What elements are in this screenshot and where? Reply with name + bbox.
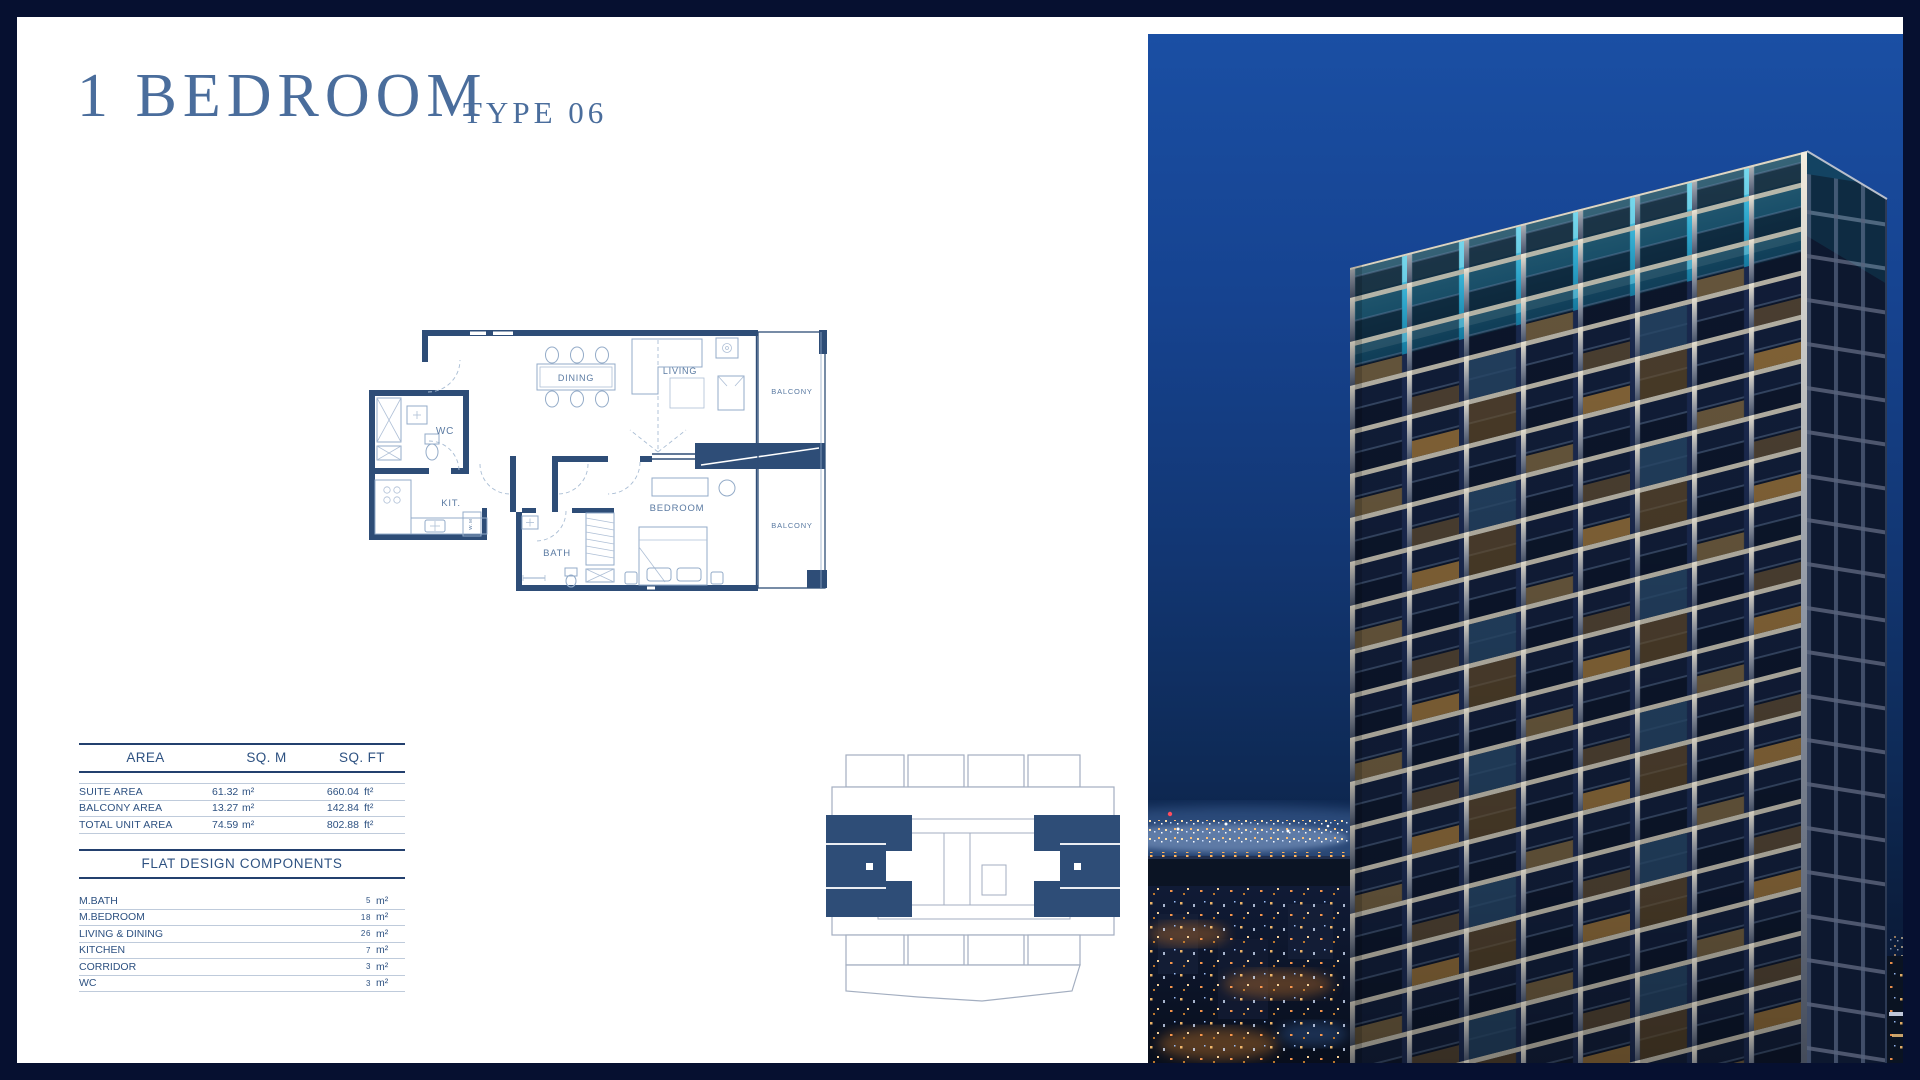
row-value: 26 [345, 929, 371, 938]
key-plan [822, 739, 1127, 1017]
row-label: KITCHEN [79, 944, 345, 956]
row-label: CORRIDOR [79, 961, 345, 973]
table-row: CORRIDOR 3 m² [79, 959, 405, 976]
components-table: FLAT DESIGN COMPONENTS M.BATH 5 m² M.BED… [79, 849, 405, 992]
row-unit: m² [371, 977, 397, 989]
row-value: 5 [345, 896, 371, 905]
bedroom-label: BEDROOM [650, 503, 705, 514]
page-subtitle: TYPE 06 [463, 95, 607, 131]
sqm-unit: m² [237, 802, 267, 814]
sqft-unit: ft² [359, 802, 389, 814]
row-label: TOTAL UNIT AREA [79, 819, 212, 831]
kitchen-label: KIT. [441, 498, 461, 509]
row-label: M.BEDROOM [79, 911, 345, 923]
wc-fixtures [377, 398, 439, 460]
balcony-bottom-label: BALCONY [771, 521, 812, 530]
balcony-top-label: BALCONY [771, 387, 812, 396]
sqm-value: 74.59 [212, 819, 237, 831]
row-value: 3 [345, 979, 371, 988]
table-row: BALCONY AREA 13.27 m² 142.84 ft² [79, 801, 405, 818]
col-header-sqft: SQ. FT [319, 750, 405, 765]
row-label: WC [79, 977, 345, 989]
row-unit: m² [371, 911, 397, 923]
bath-label: BATH [543, 548, 571, 559]
sqft-value: 142.84 [267, 802, 359, 814]
table-row: WC 3 m² [79, 976, 405, 993]
living-label: LIVING [663, 366, 697, 376]
building-photo [1148, 34, 1903, 1063]
row-label: SUITE AREA [79, 786, 212, 798]
bedroom-furniture [625, 478, 735, 585]
floor-plan: W.M [367, 322, 832, 607]
washing-machine-label: W.M [468, 518, 473, 529]
sqft-unit: ft² [359, 819, 389, 831]
beacon-light [1168, 812, 1172, 816]
row-unit: m² [371, 895, 397, 907]
table-row: M.BEDROOM 18 m² [79, 910, 405, 927]
row-value: 3 [345, 962, 371, 971]
row-unit: m² [371, 961, 397, 973]
sqm-value: 61.32 [212, 786, 237, 798]
table-row: SUITE AREA 61.32 m² 660.04 ft² [79, 784, 405, 801]
table-row: LIVING & DINING 26 m² [79, 926, 405, 943]
area-table: AREA SQ. M SQ. FT SUITE AREA 61.32 m² 66… [79, 743, 405, 834]
brochure-page: 1 BEDROOM TYPE 06 [17, 17, 1903, 1063]
dining-label: DINING [558, 373, 594, 383]
page-frame: 1 BEDROOM TYPE 06 [0, 0, 1920, 1080]
page-title: 1 BEDROOM [77, 61, 488, 132]
city-right-strip [1887, 934, 1903, 1063]
tower-side-face [1807, 144, 1887, 1063]
col-header-area: AREA [79, 750, 212, 765]
row-unit: m² [371, 944, 397, 956]
components-table-title: FLAT DESIGN COMPONENTS [79, 851, 405, 877]
wc-label: WC [436, 426, 454, 437]
sqm-value: 13.27 [212, 802, 237, 814]
table-row: TOTAL UNIT AREA 74.59 m² 802.88 ft² [79, 817, 405, 834]
sqm-unit: m² [237, 819, 267, 831]
table-row: M.BATH 5 m² [79, 893, 405, 910]
row-value: 7 [345, 946, 371, 955]
sqft-unit: ft² [359, 786, 389, 798]
row-value: 18 [345, 913, 371, 922]
tower-front-face [1350, 134, 1807, 1063]
kitchen-fixtures: W.M [375, 480, 487, 536]
row-label: BALCONY AREA [79, 802, 212, 814]
sqft-value: 802.88 [267, 819, 359, 831]
table-row: KITCHEN 7 m² [79, 943, 405, 960]
city-foreground [1148, 886, 1353, 1063]
sqm-unit: m² [237, 786, 267, 798]
area-table-header: AREA SQ. M SQ. FT [79, 745, 405, 771]
row-label: LIVING & DINING [79, 928, 345, 940]
row-label: M.BATH [79, 895, 345, 907]
col-header-sqm: SQ. M [219, 750, 314, 765]
row-unit: m² [371, 928, 397, 940]
sqft-value: 660.04 [267, 786, 359, 798]
